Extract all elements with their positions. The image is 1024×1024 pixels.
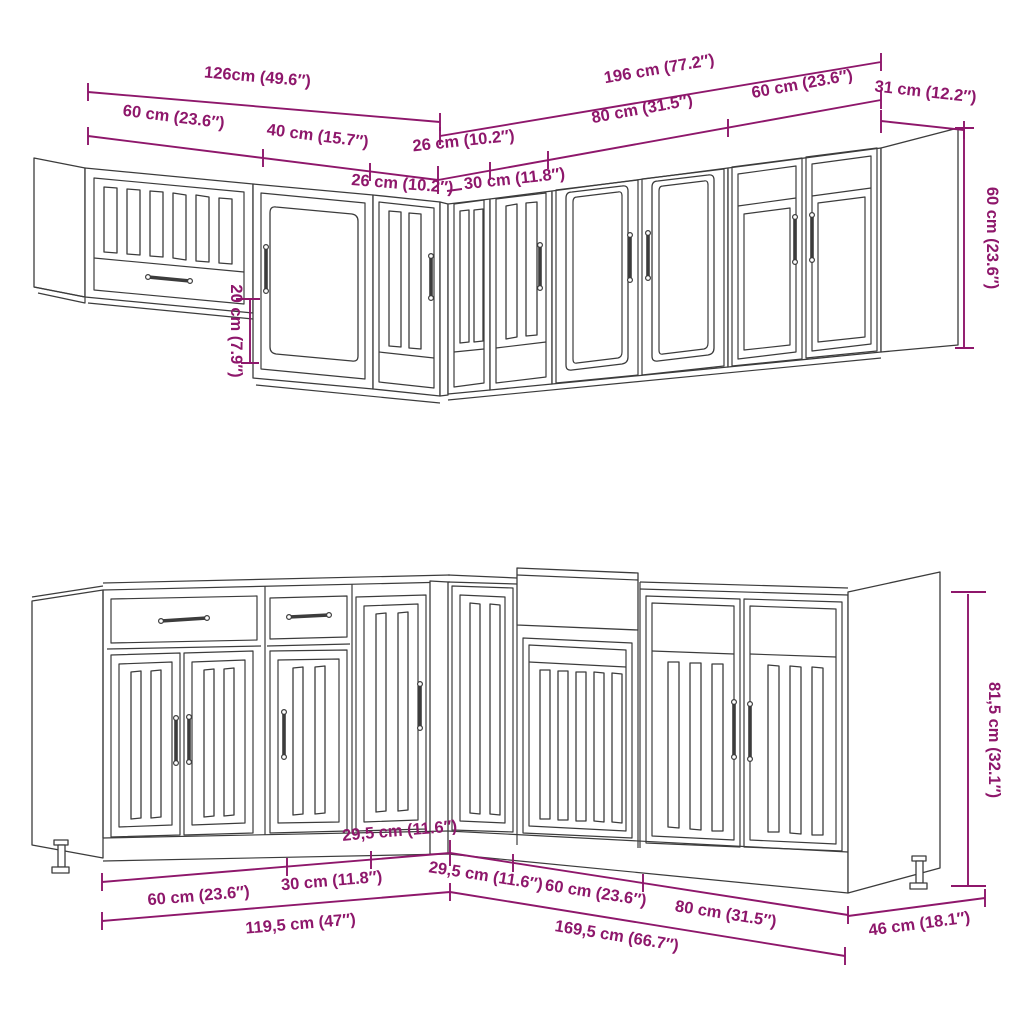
cabinet-foot-left	[52, 840, 69, 873]
drawer-handle	[159, 616, 210, 624]
kitchen-cabinet-dimension-diagram: 126cm (49.6″) 196 cm (77.2″) 31 cm (12.2…	[0, 0, 1024, 1024]
drawer-handle	[287, 613, 332, 620]
dim-base-60-left: 60 cm (23.6″)	[147, 883, 251, 910]
base-cabinet-60-left	[103, 586, 265, 838]
dim-base-corner-right: 29,5 cm (11.6″)	[427, 858, 544, 894]
base-cabinet-30	[267, 584, 352, 833]
door-handle-pair	[174, 715, 192, 766]
wall-cabinet-80-glass	[552, 168, 728, 384]
wall-cabinet-26-right	[448, 199, 490, 394]
door-handle-pair	[732, 700, 753, 762]
countertop-edge-left	[103, 575, 450, 583]
dim-base-height: 81,5 cm (32.1″)	[985, 682, 1003, 798]
base-corner-cabinet-left-face	[356, 595, 426, 831]
base-left-side-panel	[32, 586, 103, 858]
wall-cabinet-30	[490, 191, 552, 390]
dim-wall-total-right: 196 cm (77.2″)	[603, 51, 716, 87]
base-right-side-panel	[848, 572, 940, 893]
base-corner-stile	[430, 581, 448, 854]
dim-base-30: 30 cm (11.8″)	[280, 868, 383, 894]
dim-wall-total-left: 126cm (49.6″)	[203, 63, 311, 90]
base-cabinet-60-sink	[517, 568, 638, 848]
door-handle	[538, 243, 543, 291]
base-corner-cabinet-right-face	[448, 575, 517, 832]
dim-wall-26-right: 26 cm (10.2″)	[412, 127, 516, 156]
dim-base-side-depth: 46 cm (18.1″)	[867, 908, 971, 939]
countertop-face-left	[103, 582, 450, 590]
dim-wall-40: 40 cm (15.7″)	[266, 121, 370, 152]
dim-wall-80: 80 cm (31.5″)	[590, 91, 694, 127]
dim-wall-60-right: 60 cm (23.6″)	[750, 66, 854, 102]
door-handle	[264, 245, 269, 294]
wall-cabinet-40	[253, 184, 373, 389]
dim-wall-30: 30 cm (11.8″)	[463, 165, 566, 194]
door-handle	[429, 254, 434, 301]
dim-base-total-right: 169,5 cm (66.7″)	[554, 917, 681, 955]
dim-wall-height: 60 cm (23.6″)	[983, 187, 1001, 289]
door-handle	[418, 682, 423, 731]
wall-right-side-panel	[881, 128, 958, 352]
base-cabinets-drawing	[32, 568, 940, 893]
door-handle	[282, 710, 287, 760]
dim-base-total-left: 119,5 cm (47″)	[245, 910, 357, 937]
wall-left-side-panel	[34, 158, 85, 303]
diagram-canvas: 126cm (49.6″) 196 cm (77.2″) 31 cm (12.2…	[0, 0, 1024, 1024]
dim-wall-height-offset: 20 cm (7.9″)	[227, 284, 245, 377]
dim-wall-60-left: 60 cm (23.6″)	[122, 102, 226, 133]
wall-corner-stile	[440, 202, 448, 396]
dim-wall-side-depth: 31 cm (12.2″)	[874, 77, 978, 106]
